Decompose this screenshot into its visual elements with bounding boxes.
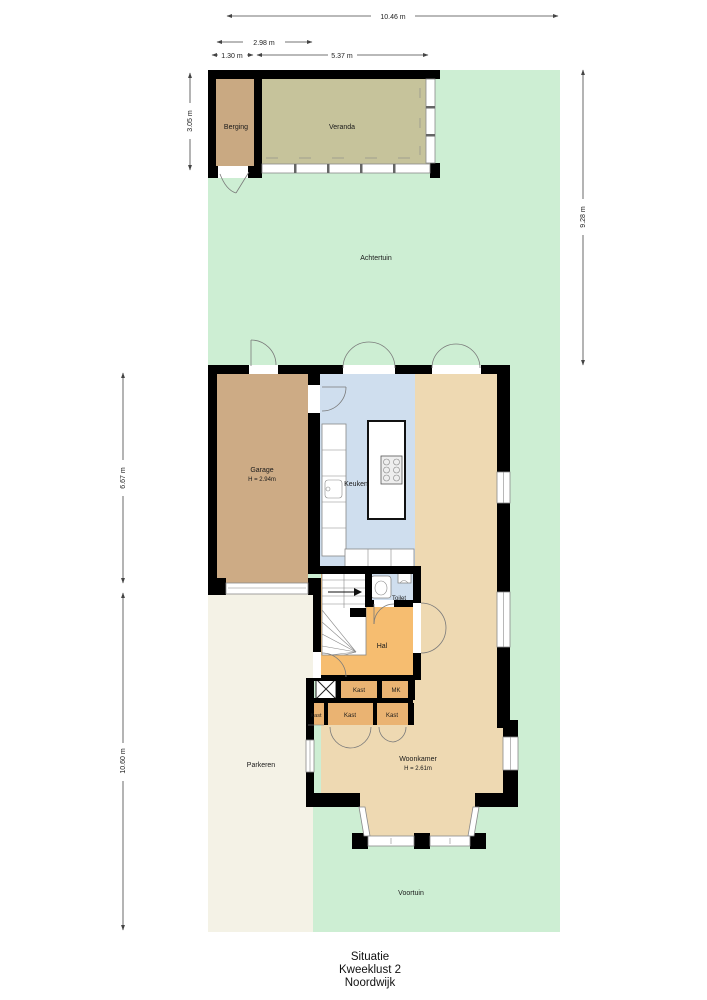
- berging-label: Berging: [224, 124, 248, 131]
- woonkamer-label: Woonkamer: [399, 756, 437, 763]
- veranda-label: Veranda: [329, 124, 355, 131]
- svg-text:5.37 m: 5.37 m: [331, 53, 353, 60]
- right-window-2: [497, 592, 510, 647]
- dim-front-depth: 10.60 m: [116, 593, 130, 930]
- outbuilding-corner-bl: [208, 166, 218, 178]
- svg-text:2.98 m: 2.98 m: [253, 40, 275, 47]
- kast2-label: Kast: [344, 713, 356, 719]
- toilet-label: Toilet: [392, 596, 406, 602]
- plan-title: Situatie Kweeklust 2 Noordwijk: [339, 951, 401, 989]
- bay-window-front-b: [430, 836, 470, 846]
- bay-window-front-a: [368, 836, 414, 846]
- garage-height-label: H = 2.94m: [248, 477, 276, 483]
- outbuilding-wall-top: [208, 70, 440, 79]
- right-window-3: [503, 737, 518, 770]
- svg-text:6.67 m: 6.67 m: [120, 467, 127, 489]
- title-line-3: Noordwijk: [345, 977, 396, 989]
- title-line-2: Kweeklust 2: [339, 964, 401, 976]
- kast1-label: Kast: [353, 688, 365, 694]
- achtertuin-label: Achtertuin: [360, 255, 392, 262]
- svg-text:10.46 m: 10.46 m: [380, 14, 405, 21]
- berging-corner-br: [248, 166, 262, 178]
- stair-wall-stub: [350, 608, 366, 617]
- outbuilding-corner-br: [430, 163, 440, 178]
- stove: [381, 456, 402, 484]
- svg-text:3.05 m: 3.05 m: [187, 110, 194, 132]
- dim-house-depth: 6.67 m: [116, 373, 130, 583]
- floorplan-svg: Berging Veranda Achtertuin Parkeren Voor…: [0, 0, 707, 1000]
- toilet-sink: [398, 573, 411, 583]
- woonkamer-height-label: H = 2.61m: [404, 766, 432, 772]
- left-window: [306, 740, 314, 772]
- woonkamer-floor-upper: [415, 374, 497, 729]
- staircase: [322, 572, 366, 655]
- kast3-label: Kast: [386, 713, 398, 719]
- dim-berging-width: 2.98 m: [217, 36, 312, 48]
- svg-text:9.28 m: 9.28 m: [580, 206, 587, 228]
- dim-total-width: 10.46 m: [227, 10, 558, 22]
- kitchen-counter-left: [322, 424, 346, 556]
- berging-veranda-wall: [254, 77, 262, 172]
- mk-label: MK: [392, 688, 401, 694]
- dim-outbuilding-depth: 3.05 m: [183, 73, 197, 170]
- garage-door: [226, 583, 308, 594]
- keuken-label: Keuken: [344, 481, 368, 488]
- svg-text:10.60 m: 10.60 m: [120, 748, 127, 773]
- right-window-1: [497, 472, 510, 503]
- floorplan-page: Berging Veranda Achtertuin Parkeren Voor…: [0, 0, 707, 1000]
- kitchen-island: [368, 421, 405, 519]
- dim-left-width: 1.30 m: [212, 49, 253, 60]
- dim-veranda-width: 5.37 m: [257, 49, 428, 60]
- voortuin-label: Voortuin: [398, 890, 424, 897]
- shaft-box: [316, 679, 336, 699]
- dim-achtertuin-depth: 9.28 m: [576, 70, 590, 365]
- garage-label: Garage: [250, 467, 273, 474]
- hal-label: Hal: [377, 643, 388, 650]
- svg-text:1.30 m: 1.30 m: [221, 53, 243, 60]
- veranda-floor: [260, 77, 432, 167]
- outbuilding-wall-left: [208, 70, 216, 178]
- kast-small-label: Kast: [310, 713, 321, 719]
- title-line-1: Situatie: [351, 951, 389, 963]
- parkeren-label: Parkeren: [247, 762, 276, 769]
